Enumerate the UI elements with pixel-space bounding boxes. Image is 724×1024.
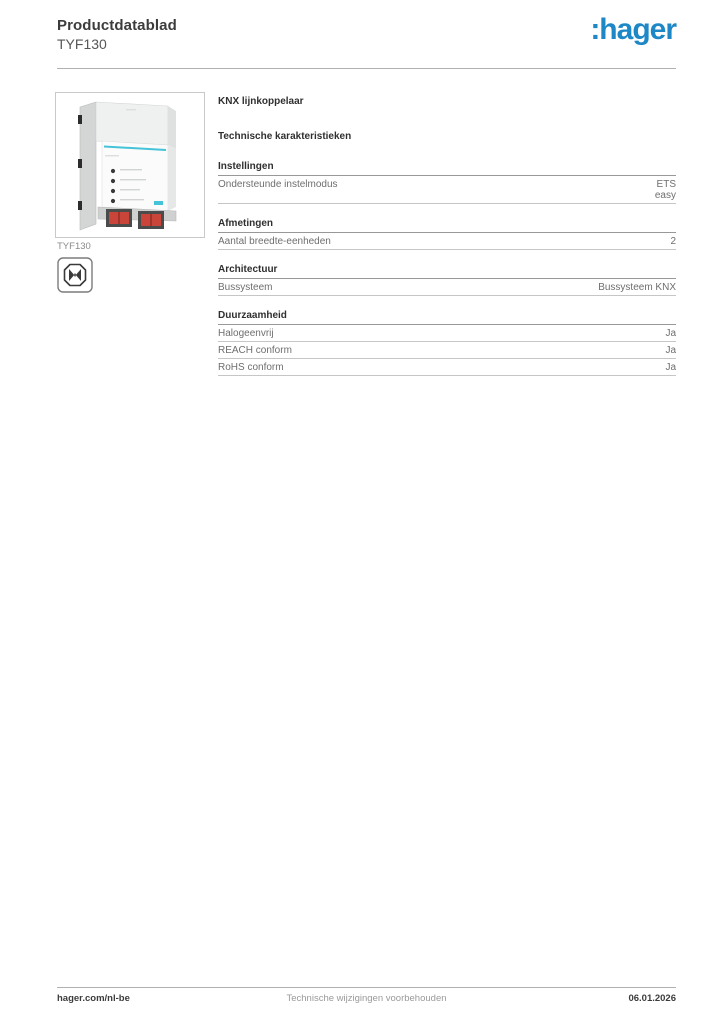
spec-value: 2 [670,236,676,247]
group-title: Architectuur [218,264,676,279]
spec-row: Halogeenvrij Ja [218,325,676,342]
doc-type-title: Productdatablad [57,17,676,34]
spec-label: Aantal breedte-eenheden [218,236,331,247]
spec-value: ETS easy [655,179,676,201]
spec-label: RoHS conform [218,362,284,373]
spec-value: Ja [665,345,676,356]
spec-row: RoHS conform Ja [218,359,676,376]
spec-group-architectuur: Architectuur Bussysteem Bussysteem KNX [218,264,676,296]
spec-label: Ondersteunde instelmodus [218,179,338,190]
section-title: Technische karakteristieken [218,131,676,142]
product-reference: TYF130 [57,36,676,52]
product-title: KNX lijnkoppelaar [218,96,676,107]
doc-footer: hager.com/nl-be Technische wijzigingen v… [57,993,676,1004]
footer-disclaimer: Technische wijzigingen voorbehouden [212,993,522,1004]
spec-label: Bussysteem [218,282,272,293]
product-image [55,92,205,238]
spec-row: REACH conform Ja [218,342,676,359]
header-divider [57,68,676,69]
halogen-free-icon [57,257,93,293]
spec-row: Aantal breedte-eenheden 2 [218,233,676,250]
group-title: Instellingen [218,161,676,176]
spec-group-afmetingen: Afmetingen Aantal breedte-eenheden 2 [218,218,676,250]
spec-column: KNX lijnkoppelaar Technische karakterist… [218,96,676,390]
spec-label: Halogeenvrij [218,328,274,339]
footer-date: 06.01.2026 [521,993,676,1004]
hager-logo: :hager [590,13,676,47]
spec-value: Ja [665,328,676,339]
doc-header: Productdatablad TYF130 :hager [57,17,676,52]
product-image-caption: TYF130 [57,241,91,252]
group-title: Duurzaamheid [218,310,676,325]
footer-divider [57,987,676,988]
datasheet-page: Productdatablad TYF130 :hager [0,0,724,1024]
spec-group-duurzaamheid: Duurzaamheid Halogeenvrij Ja REACH confo… [218,310,676,376]
footer-website: hager.com/nl-be [57,993,212,1004]
spec-row: Ondersteunde instelmodus ETS easy [218,176,676,204]
spec-value: Ja [665,362,676,373]
spec-group-instellingen: Instellingen Ondersteunde instelmodus ET… [218,161,676,204]
group-title: Afmetingen [218,218,676,233]
knx-module-illustration [56,93,204,237]
spec-value: Bussysteem KNX [598,282,676,293]
spec-row: Bussysteem Bussysteem KNX [218,279,676,296]
spec-label: REACH conform [218,345,292,356]
